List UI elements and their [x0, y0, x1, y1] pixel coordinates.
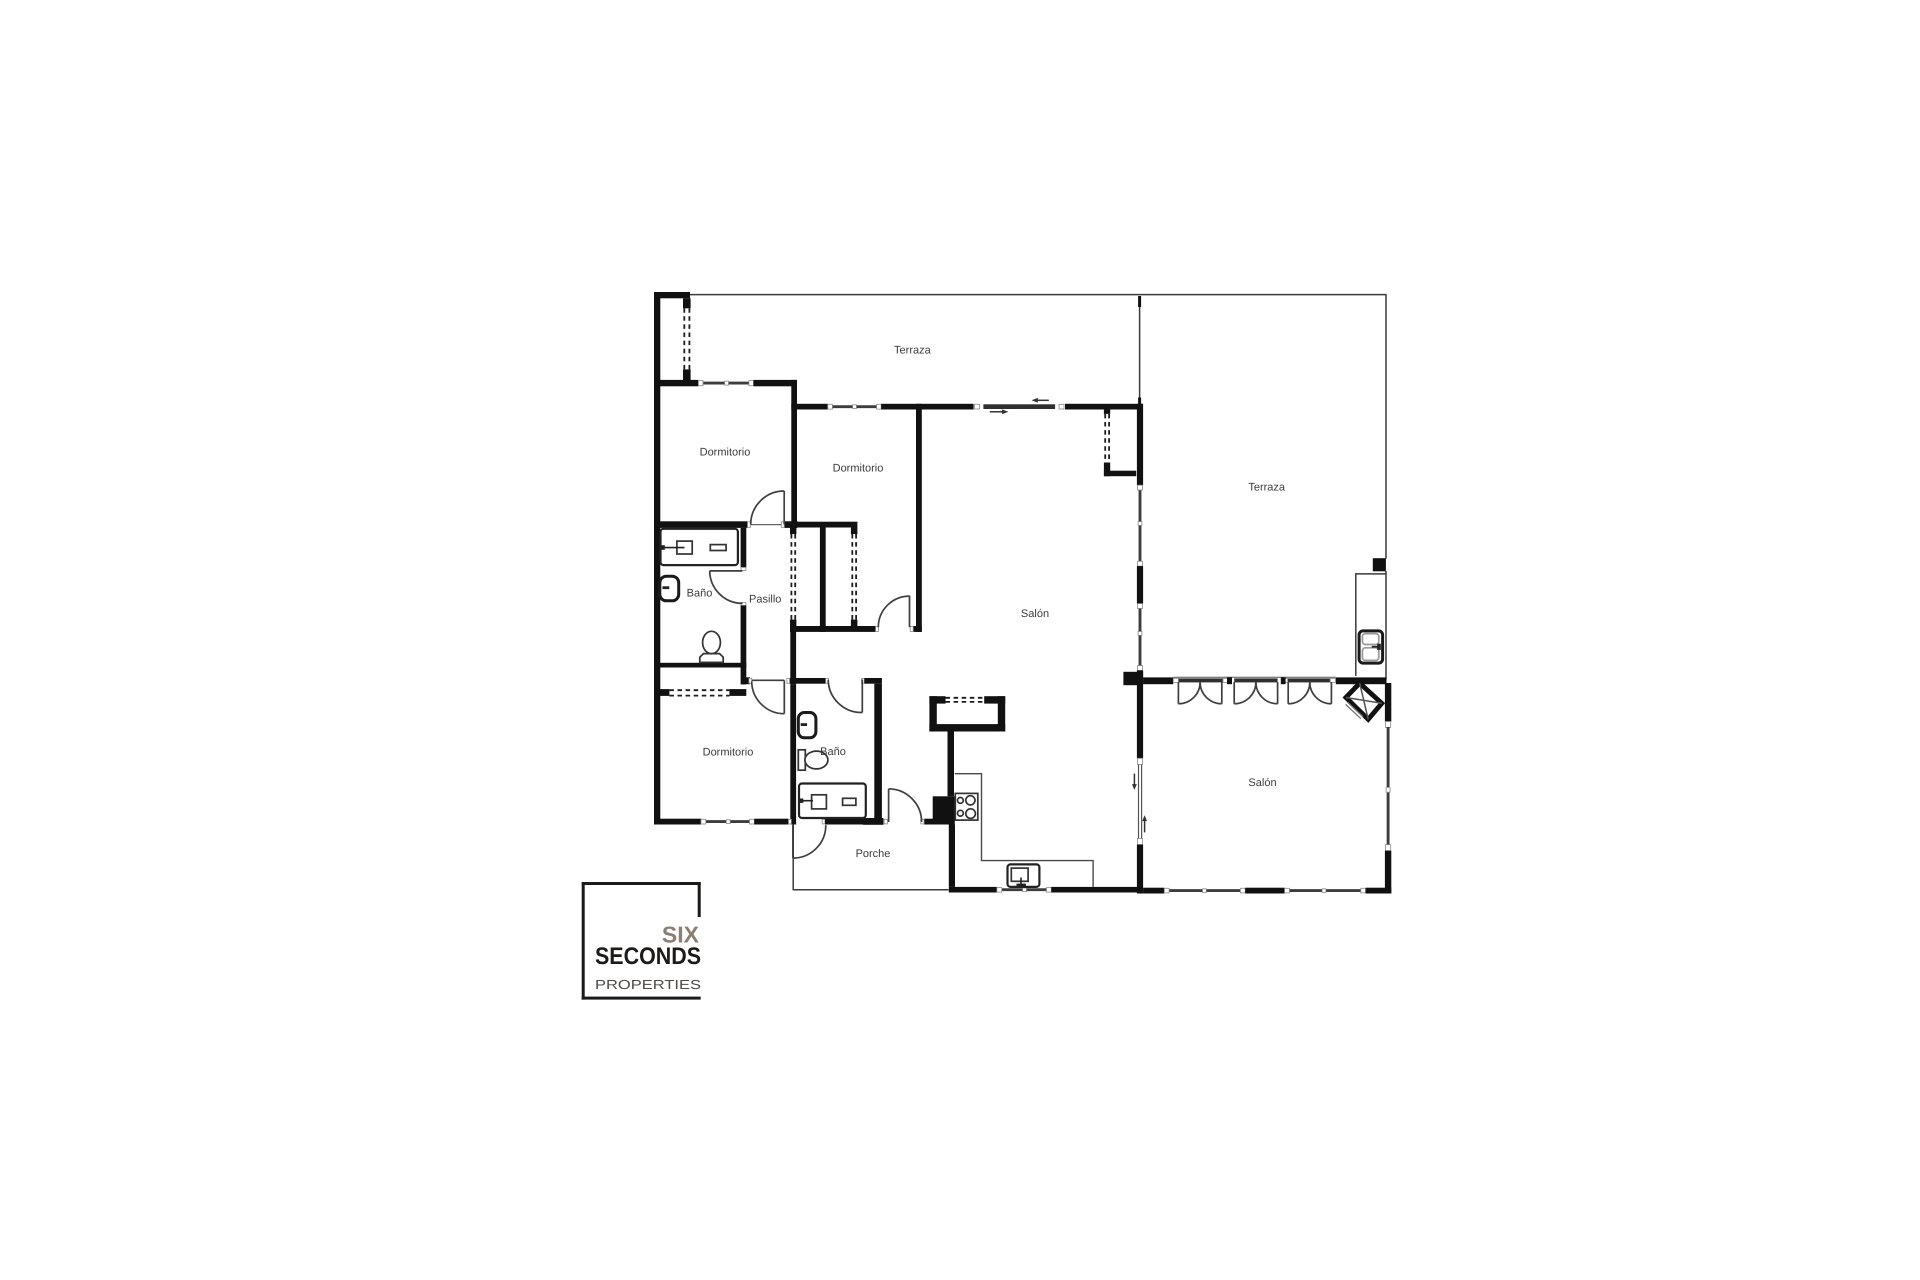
svg-text:Terraza: Terraza — [1248, 482, 1286, 494]
svg-text:Salón: Salón — [1021, 608, 1049, 620]
svg-text:PROPERTIES: PROPERTIES — [595, 977, 701, 992]
svg-text:Dormitorio: Dormitorio — [700, 447, 751, 459]
svg-text:Baño: Baño — [820, 746, 846, 758]
svg-text:Terraza: Terraza — [894, 345, 932, 357]
svg-text:Porche: Porche — [856, 848, 891, 860]
svg-text:Dormitorio: Dormitorio — [833, 463, 884, 475]
svg-text:Dormitorio: Dormitorio — [703, 747, 754, 759]
svg-text:SECONDS: SECONDS — [595, 943, 701, 970]
svg-text:Salón: Salón — [1248, 777, 1276, 789]
svg-text:Baño: Baño — [687, 588, 713, 600]
svg-text:Pasillo: Pasillo — [749, 594, 781, 606]
